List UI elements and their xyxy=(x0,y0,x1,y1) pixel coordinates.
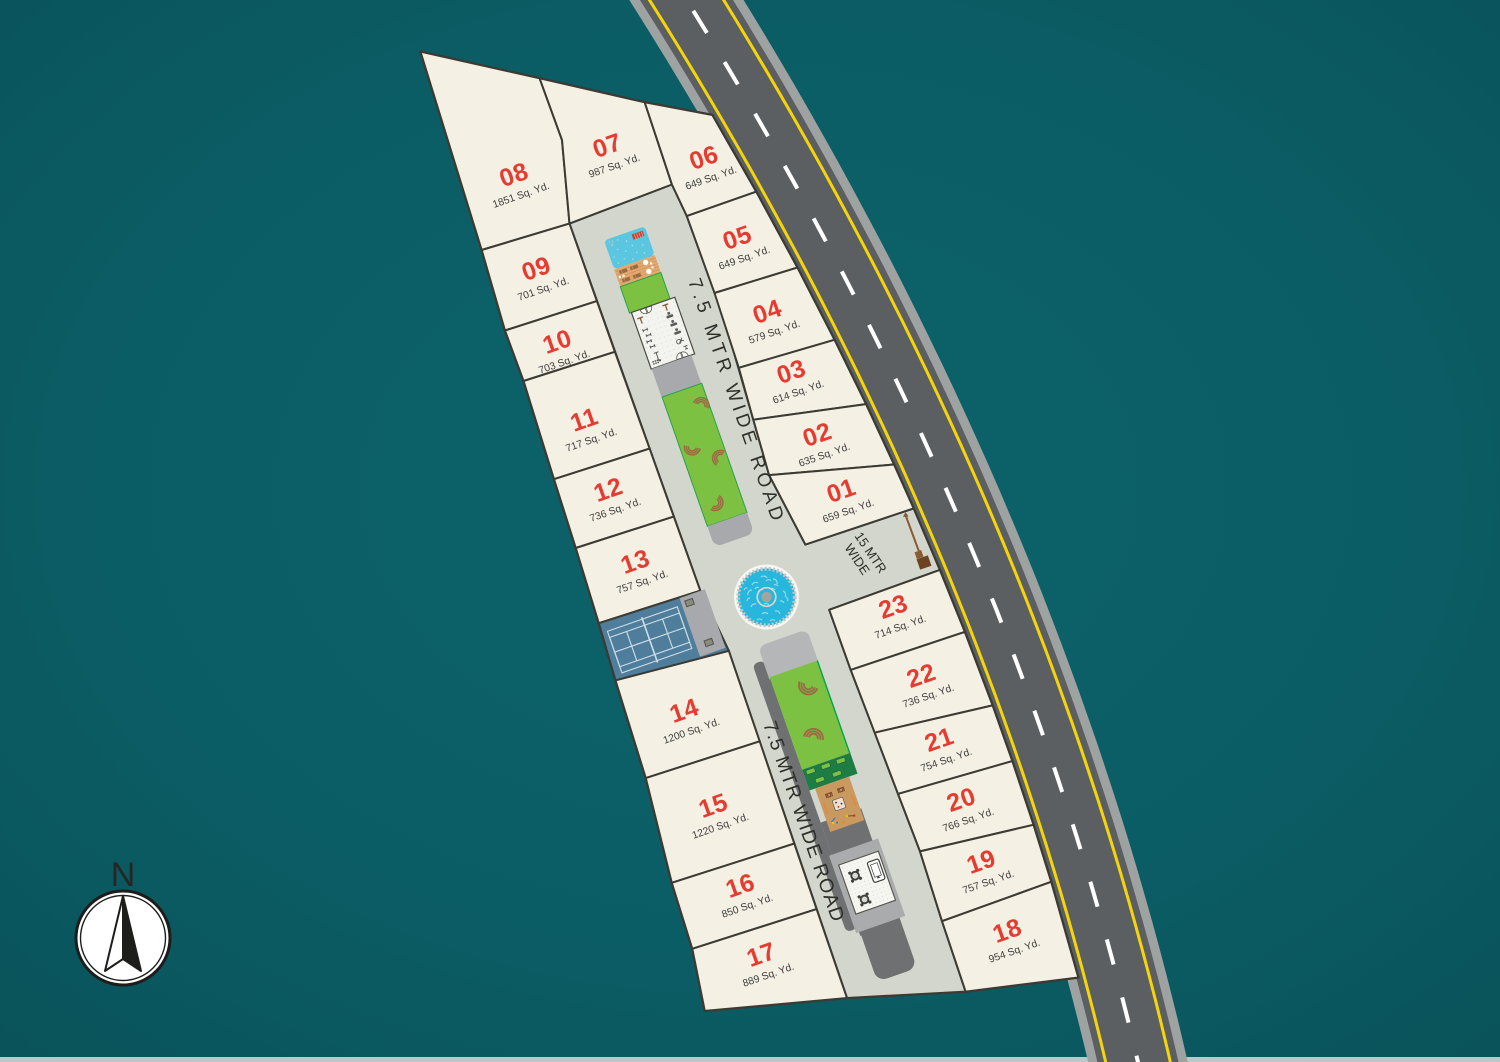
svg-text:N: N xyxy=(111,856,136,894)
